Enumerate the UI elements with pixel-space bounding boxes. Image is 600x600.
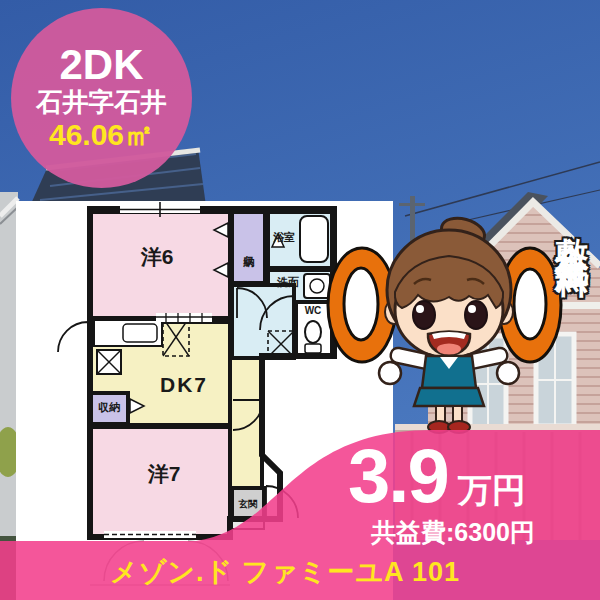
badge-floor-area: 46.06㎡ xyxy=(49,118,154,153)
badge-address: 石井字石井 xyxy=(37,86,167,119)
rent-unit: 万円 xyxy=(458,468,526,514)
badge-layout-type: 2DK xyxy=(59,44,143,86)
listing-badge: 2DK 石井字石井 46.06㎡ xyxy=(11,8,192,188)
rent-price: 3.9 万円 xyxy=(348,438,526,514)
common-fee: 共益費:6300円 xyxy=(371,516,535,549)
property-name: メゾン.ド ファミーユA 101 xyxy=(110,554,460,590)
rent-amount: 3.9 xyxy=(348,438,448,514)
rental-listing-card[interactable]: 洋6 収納 浴室 洗面 WC DK7 収納 洋7 玄関 xyxy=(0,0,600,600)
